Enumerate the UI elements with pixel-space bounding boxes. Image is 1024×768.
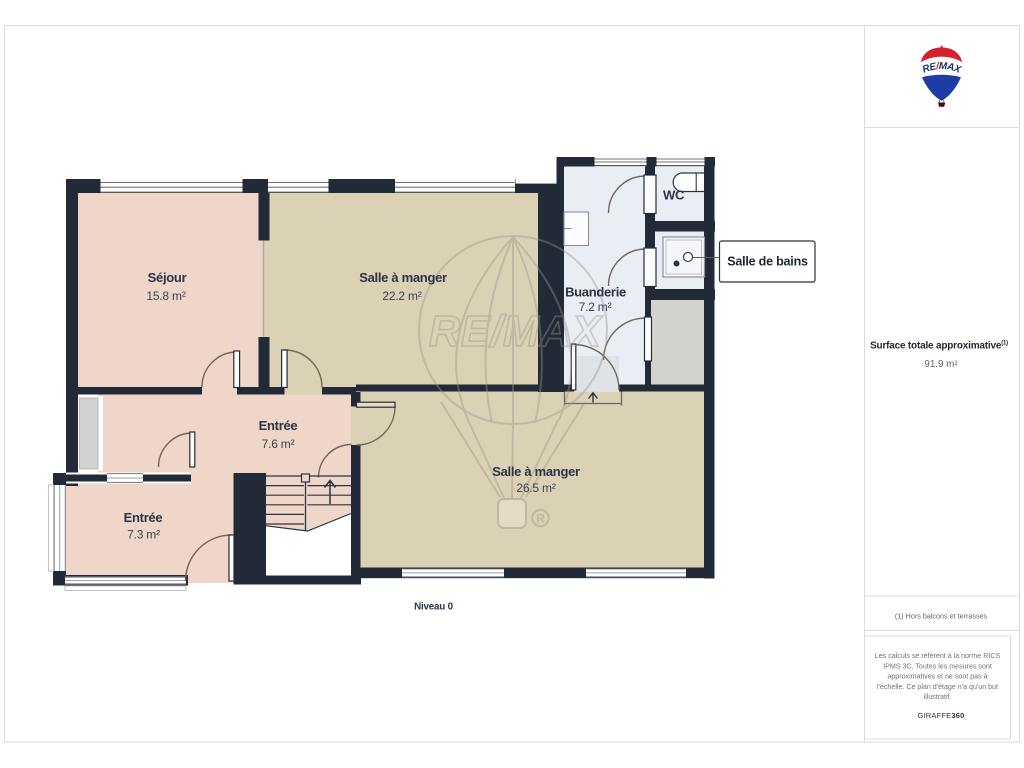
- svg-text:Séjour: Séjour: [148, 270, 187, 285]
- svg-text:WC: WC: [663, 188, 685, 203]
- svg-text:7.3 m²: 7.3 m²: [127, 528, 160, 542]
- svg-text:Salle à manger: Salle à manger: [492, 464, 580, 479]
- svg-text:RE/MAX: RE/MAX: [429, 308, 604, 356]
- svg-text:15.8 m²: 15.8 m²: [146, 289, 185, 303]
- svg-text:7.6 m²: 7.6 m²: [262, 437, 295, 451]
- svg-text:7.2 m²: 7.2 m²: [579, 300, 612, 314]
- svg-text:91.9 m²: 91.9 m²: [924, 359, 958, 370]
- svg-text:Niveau 0: Niveau 0: [414, 602, 453, 613]
- svg-text:R: R: [536, 512, 545, 526]
- svg-text:Salle de bains: Salle de bains: [727, 255, 808, 269]
- svg-text:(1) Hors balcons et terrasses: (1) Hors balcons et terrasses: [895, 612, 988, 621]
- svg-text:illustratif.: illustratif.: [924, 693, 952, 701]
- svg-text:Buanderie: Buanderie: [565, 285, 626, 300]
- svg-text:approximatives et ne sont pas: approximatives et ne sont pas à: [887, 673, 987, 681]
- svg-text:Entrée: Entrée: [259, 418, 298, 433]
- svg-text:Salle à manger: Salle à manger: [359, 270, 447, 285]
- svg-text:l'échelle. Ce plan d'étage n'a: l'échelle. Ce plan d'étage n'a qu'un but: [877, 683, 998, 691]
- svg-text:IPMS 3C. Toutes les mesures so: IPMS 3C. Toutes les mesures sont: [883, 662, 992, 670]
- svg-text:22.2 m²: 22.2 m²: [382, 289, 421, 303]
- svg-text:Entrée: Entrée: [124, 510, 163, 525]
- svg-text:Surface totale approximative(1: Surface totale approximative(1): [870, 341, 1008, 352]
- svg-text:Les calculs se réfèrent à la n: Les calculs se réfèrent à la norme RICS: [875, 652, 1001, 660]
- svg-text:26.5 m²: 26.5 m²: [516, 481, 555, 495]
- svg-text:GIRAFFE360: GIRAFFE360: [917, 711, 964, 720]
